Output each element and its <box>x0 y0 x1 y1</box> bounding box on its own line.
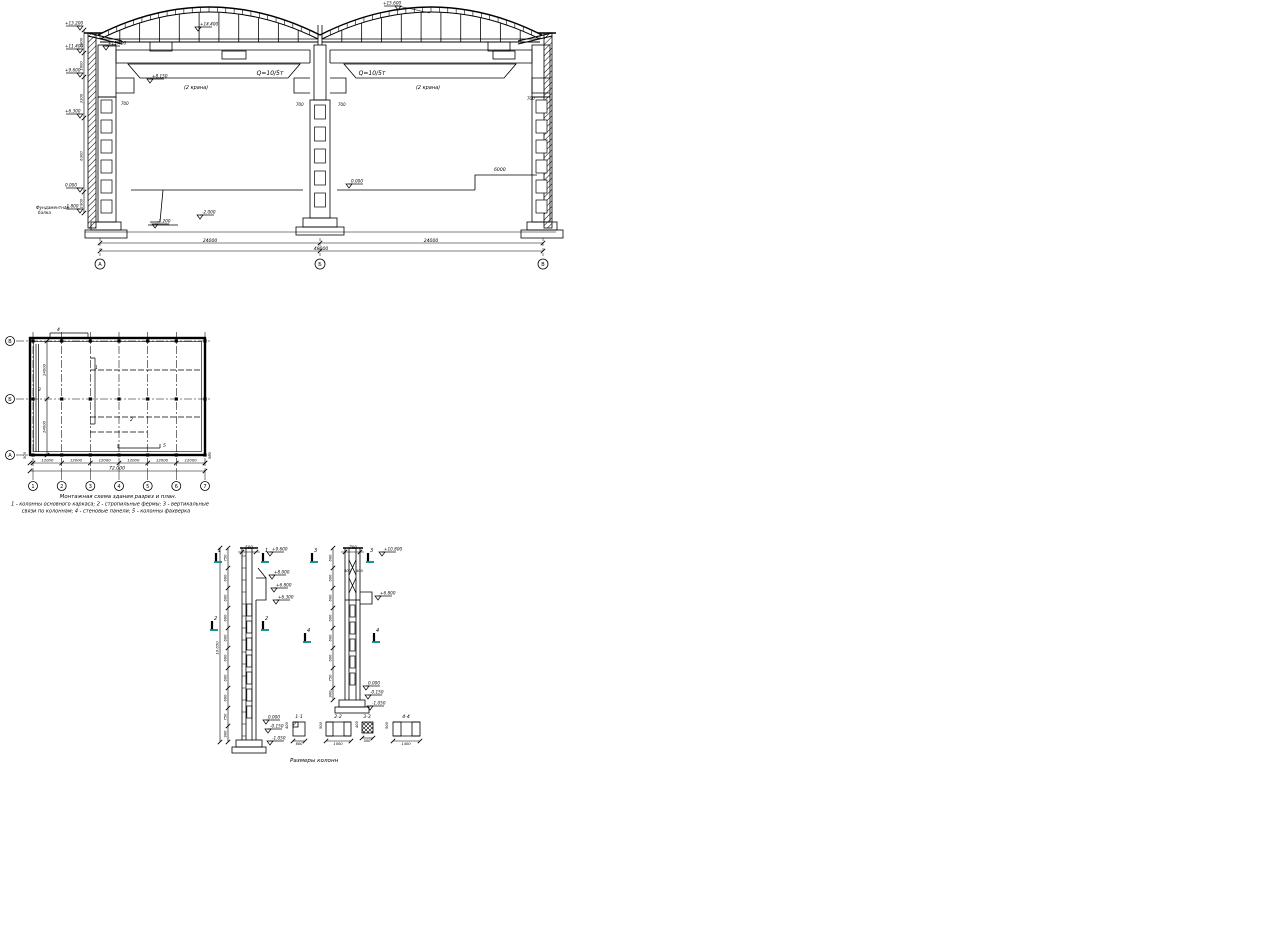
col2-chain-dim: 600 <box>329 614 333 622</box>
axis-bubble-label: А <box>8 453 12 459</box>
column-opening <box>247 689 252 701</box>
col2-chain-dim: 900 <box>329 690 333 698</box>
plan-column-mark <box>117 397 120 400</box>
plan-column-mark <box>203 397 206 400</box>
rail-dim: 700 <box>338 102 346 107</box>
plan-row-dim: 24000 <box>42 363 47 376</box>
plan-end-dim: 500 <box>208 451 212 459</box>
column-opening <box>247 604 252 616</box>
plan-wall-panels <box>36 344 39 452</box>
generated-annotations: 700700700700АБВ+13.200+11.400+9.600+6.30… <box>6 1 549 747</box>
section-cut-label: 3-3 <box>363 714 371 720</box>
section-cut-dim: 600 <box>296 742 304 746</box>
section-total-dim: 48000 <box>314 246 329 252</box>
col2-elevation: 0.000 <box>368 681 380 686</box>
plan-part-label: 1 <box>95 365 98 371</box>
foundation-left <box>85 222 127 238</box>
peak-elevation: +15.600 <box>383 1 401 6</box>
plan-bottom-bracket <box>118 444 160 448</box>
col1-chain-dim: 600 <box>224 594 228 602</box>
section-cut-label: 2-2 <box>334 714 342 720</box>
col1-overall-dim: 10.650 <box>215 641 220 655</box>
section-cut-dim: 1000 <box>333 742 343 746</box>
col2-elevation: +10.800 <box>384 547 402 552</box>
axis-bubble-label: 7 <box>203 484 206 490</box>
section-cut-dim: 400 <box>285 721 289 729</box>
section-cut-label: 1-1 <box>295 714 303 720</box>
section-cut-label: 4-4 <box>402 714 410 720</box>
crane-capacity-left: Q=10/5т <box>257 70 284 77</box>
cut-mark-label: 3 <box>314 548 317 554</box>
plan-column-mark <box>31 397 34 400</box>
roof-beam-lines <box>116 50 532 63</box>
plan-column-mark <box>117 453 120 456</box>
left-chain-dim: 3300 <box>79 93 84 103</box>
plan-part-label: 5 <box>163 443 166 449</box>
column-opening <box>101 100 112 113</box>
column-detail-1 <box>232 548 266 753</box>
column-opening <box>247 655 252 667</box>
col2-chain-dim: 600 <box>329 634 333 642</box>
section-cut-dim: 500 <box>319 721 323 729</box>
plan-column-mark <box>31 453 34 456</box>
column-opening <box>536 200 547 213</box>
plan-part-label: 2 <box>130 417 133 423</box>
col1-chain-dim: 600 <box>224 694 228 702</box>
col1-chain-dim: 600 <box>224 634 228 642</box>
col1-elevation: +8.000 <box>274 570 290 575</box>
plan-column-mark <box>175 453 178 456</box>
engineering-drawing: 700700700700АБВ+13.200+11.400+9.600+6.30… <box>0 0 1287 926</box>
plan-bay-dim: 12000 <box>99 458 112 463</box>
plan-bay-dim: 12000 <box>185 458 198 463</box>
plan-view <box>30 333 205 455</box>
column-opening <box>536 160 547 173</box>
floor-zero-mark: 0.000 <box>351 179 363 184</box>
cut-mark-label: 4 <box>376 628 379 634</box>
column-opening <box>536 100 547 113</box>
left-chain-dim: 6300 <box>79 151 84 161</box>
column-opening <box>101 140 112 153</box>
left-chain-dim: 1800 <box>79 198 84 208</box>
column-opening <box>315 127 326 141</box>
column-opening <box>315 149 326 163</box>
column-opening <box>247 706 252 718</box>
plan-column-mark <box>60 453 63 456</box>
column-opening <box>536 140 547 153</box>
plan-bay-dim: 12000 <box>41 458 54 463</box>
column-opening <box>315 193 326 207</box>
col1-top-dim: 500 <box>245 545 253 550</box>
cut-mark-label: 2 <box>214 616 217 622</box>
cut-mark-label: 2 <box>265 616 268 622</box>
col2-chain-dim: 600 <box>329 654 333 662</box>
plan-column-mark <box>146 397 149 400</box>
plan-column-mark <box>60 339 63 342</box>
plan-part-label: 4 <box>57 327 60 333</box>
col2-elevation: -0.150 <box>370 690 384 695</box>
col1-elevation: -0.150 <box>270 724 284 729</box>
plan-bay-dim: 12000 <box>127 458 140 463</box>
plan-column-mark <box>89 339 92 342</box>
axis-bubble-label: 4 <box>117 484 120 490</box>
plan-column-mark <box>31 339 34 342</box>
col1-chain-dim: 750 <box>224 713 228 721</box>
span-dim-right: 24000 <box>424 238 439 244</box>
elevation-mark-left: +6.300 <box>65 109 81 114</box>
axis-bubble-label: А <box>98 262 102 268</box>
col1-chain-dim: 600 <box>224 614 228 622</box>
column-opening <box>247 672 252 684</box>
section-cut-dim: 500 <box>364 739 372 743</box>
col2-chain-dim: 600 <box>329 594 333 602</box>
plan-column-mark <box>117 339 120 342</box>
plan-end-dim: 500 <box>23 451 27 459</box>
column-opening <box>350 656 355 668</box>
pit-mark: -2.000 <box>202 210 216 215</box>
rail-dim: 700 <box>527 96 535 101</box>
cut-mark-label: 4 <box>307 628 310 634</box>
rail-dim: 700 <box>121 101 129 106</box>
axis-bubble-label: В <box>541 262 545 268</box>
axis-bubble-label: 3 <box>89 484 92 490</box>
plan-row-dim: 24000 <box>42 420 47 433</box>
col2-elevation: -1.050 <box>372 701 386 706</box>
plan-total-dim: 72.000 <box>109 466 125 472</box>
col1-elevation: +9.600 <box>272 547 288 552</box>
col1-elevation: 0.000 <box>268 715 280 720</box>
rail-dim: 700 <box>296 102 304 107</box>
column-middle-upper <box>314 45 326 100</box>
column-opening <box>247 621 252 633</box>
plan-outer-wall <box>30 338 205 455</box>
col2-branch-dim: 400 <box>356 569 364 573</box>
col1-chain-dim: 600 <box>224 574 228 582</box>
column-opening <box>101 200 112 213</box>
ridge-elevation: +14.400 <box>200 22 218 27</box>
platform <box>475 175 537 190</box>
col1-chain-dim: 750 <box>224 554 228 562</box>
crane-capacity-right: Q=10/5т <box>359 70 386 77</box>
axis-bubble-label: 2 <box>60 484 63 490</box>
column-opening <box>247 638 252 650</box>
axis-bubble-label: 1 <box>31 484 34 490</box>
plan-column-mark <box>203 339 206 342</box>
column-opening <box>350 622 355 634</box>
left-chain-dim: 1800 <box>79 37 84 47</box>
axis-bubble-label: 5 <box>146 484 149 490</box>
column-opening <box>101 120 112 133</box>
cut-mark-label: 1 <box>265 548 268 554</box>
eaves-elevation: +8.150 <box>152 74 168 79</box>
plan-bay-dim: 12000 <box>70 458 83 463</box>
foundation-middle <box>296 218 344 235</box>
plan-column-mark <box>146 339 149 342</box>
plan-column-mark <box>146 453 149 456</box>
axis-bubble-label: Б <box>318 262 322 268</box>
column-opening <box>350 605 355 617</box>
column-opening <box>101 160 112 173</box>
plan-column-mark <box>89 453 92 456</box>
plan-column-mark <box>175 397 178 400</box>
pit-mark: -1.200 <box>157 219 171 224</box>
plan-column-mark <box>175 339 178 342</box>
plan-bay-dim: 12000 <box>156 458 169 463</box>
plan-column-mark <box>60 397 63 400</box>
foundation-right <box>521 222 563 238</box>
span-dim-left: 24000 <box>203 238 218 244</box>
col1-elevation: -1.050 <box>272 736 286 741</box>
col1-chain-dim: 900 <box>224 730 228 738</box>
base-note-line2: балка <box>38 210 51 215</box>
axis-bubble-label: 6 <box>175 484 178 490</box>
col2-chain-dim: 750 <box>329 674 333 682</box>
wall-left <box>88 33 96 228</box>
crane-count-right: (2 крана) <box>416 85 440 91</box>
plan-column-mark <box>203 453 206 456</box>
column-opening <box>536 180 547 193</box>
column-opening <box>536 120 547 133</box>
cut-mark-label: 1 <box>218 548 221 554</box>
elevation-mark-left: 0.000 <box>65 183 77 188</box>
column-details <box>232 548 420 753</box>
plan-caption-line1: Монтажная схема здания разрез и план. <box>60 494 177 500</box>
plan-caption-line2: 1 - колонны основного каркаса; 2 - строп… <box>11 502 209 508</box>
col1-chain-dim: 600 <box>224 674 228 682</box>
column-opening <box>350 673 355 685</box>
plan-caption-line3: связи по колоннам; 4 - стеновые панели; … <box>22 509 190 515</box>
axis-bubble-label: В <box>8 339 12 345</box>
drawing-sheet: 700700700700АБВ+13.200+11.400+9.600+6.30… <box>0 0 1287 926</box>
section-cut-dim: 1400 <box>401 742 411 746</box>
col2-branch-dim: 400 <box>344 569 352 573</box>
col2-chain-dim: 600 <box>329 554 333 562</box>
column-left-upper <box>98 45 116 97</box>
crane-count-left: (2 крана) <box>184 85 208 91</box>
columns-caption: Размеры колонн <box>290 758 339 764</box>
column-opening <box>315 105 326 119</box>
cut-mark-label: 3 <box>370 548 373 554</box>
col1-elevation: +6.300 <box>278 595 294 600</box>
col2-top-dim: 700 <box>349 545 357 550</box>
column-opening <box>101 180 112 193</box>
platform-dim: 6000 <box>494 167 506 173</box>
plan-part-label: 3 <box>38 387 41 393</box>
plan-column-mark <box>89 397 92 400</box>
section-cut-dim: 400 <box>355 720 359 728</box>
column-opening <box>315 171 326 185</box>
left-chain-dim: 1800 <box>79 61 84 71</box>
elevation-mark-left: +13.200 <box>65 21 83 26</box>
section-cut-dim: 500 <box>385 721 389 729</box>
axis-bubble-label: Б <box>8 397 12 403</box>
eaves-elevation: +11.400 <box>108 41 126 46</box>
column-opening <box>350 639 355 651</box>
col1-chain-dim: 600 <box>224 654 228 662</box>
col2-elevation: +6.800 <box>380 591 396 596</box>
col2-chain-dim: 600 <box>329 574 333 582</box>
col1-elevation: +6.800 <box>276 583 292 588</box>
